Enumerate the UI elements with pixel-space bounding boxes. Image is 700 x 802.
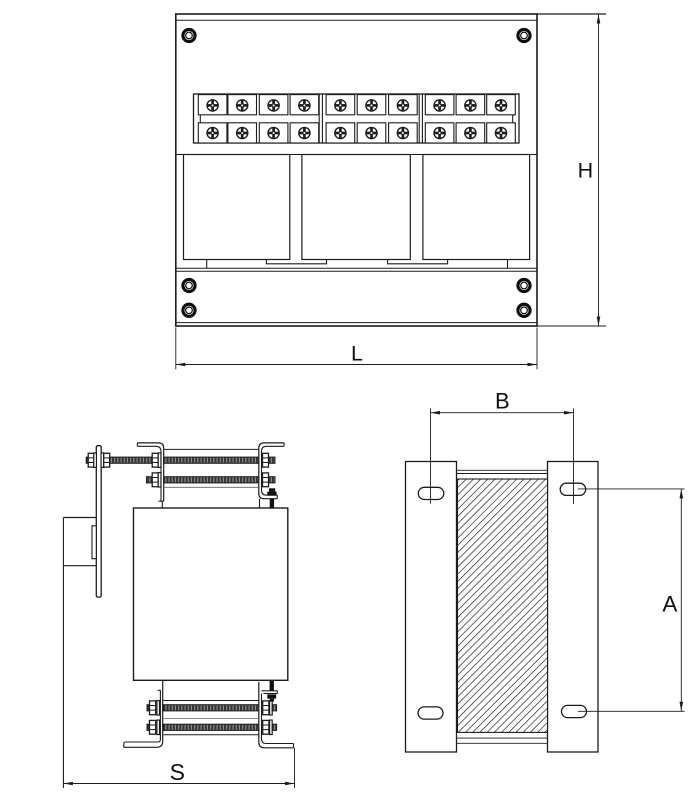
svg-text:A: A	[662, 591, 677, 616]
svg-text:B: B	[495, 389, 510, 414]
svg-text:L: L	[351, 342, 363, 366]
svg-text:H: H	[578, 158, 594, 182]
svg-text:S: S	[170, 759, 185, 785]
